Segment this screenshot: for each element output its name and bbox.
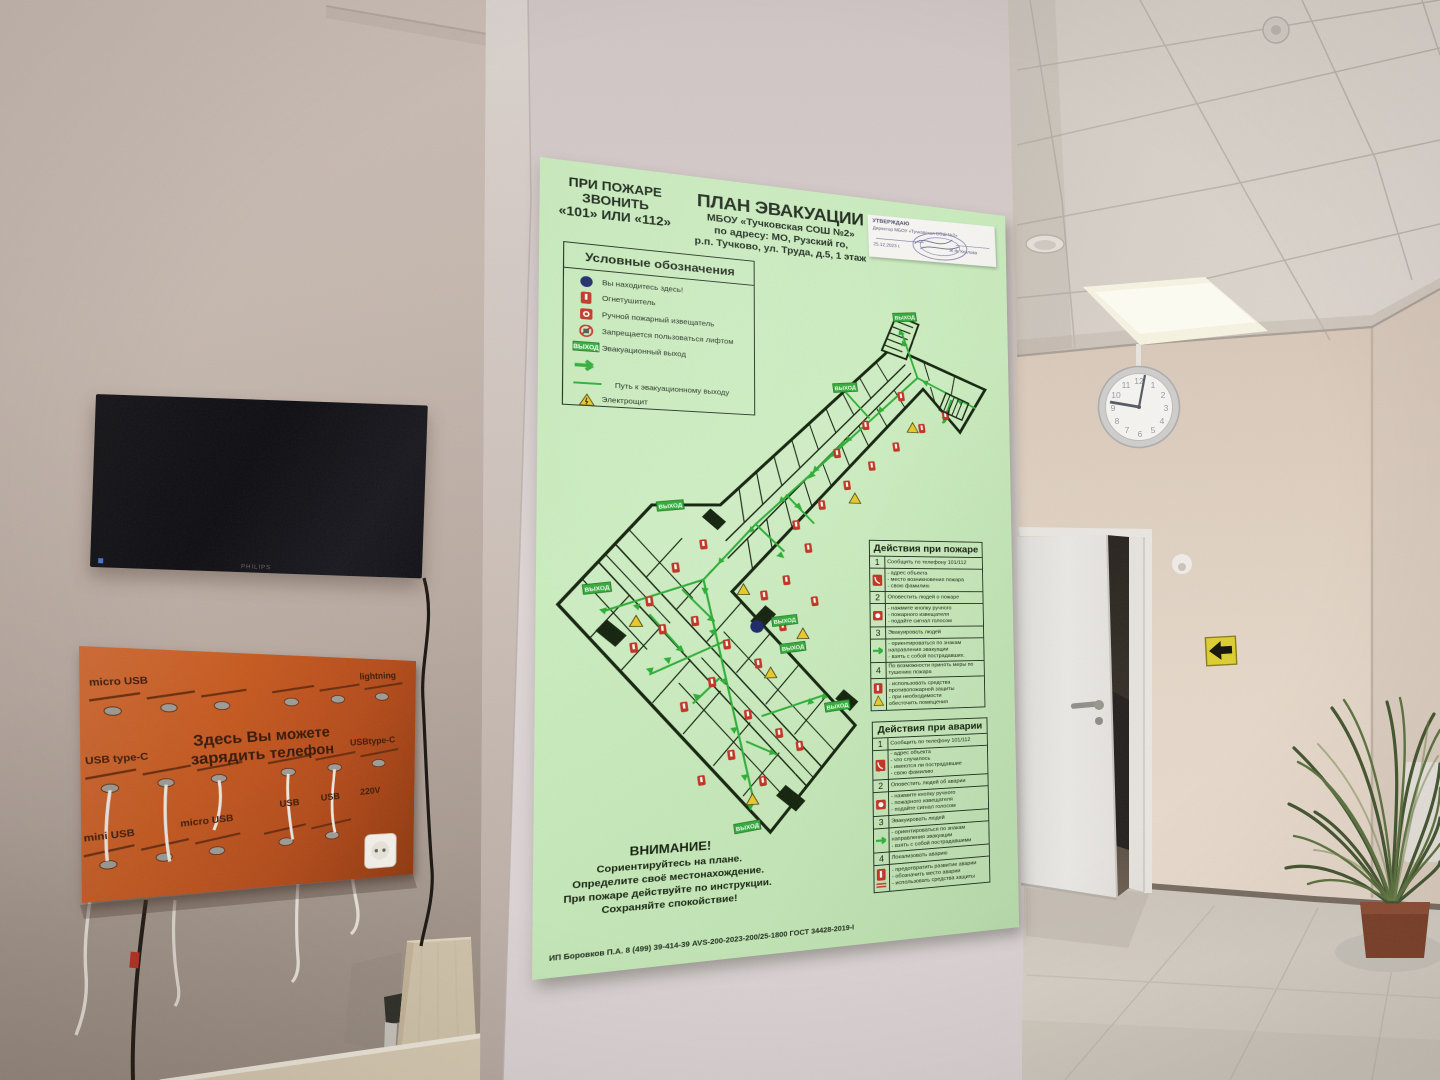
svg-text:ВЫХОД: ВЫХОД [894, 315, 915, 321]
svg-text:ВЫХОД: ВЫХОД [834, 385, 856, 392]
